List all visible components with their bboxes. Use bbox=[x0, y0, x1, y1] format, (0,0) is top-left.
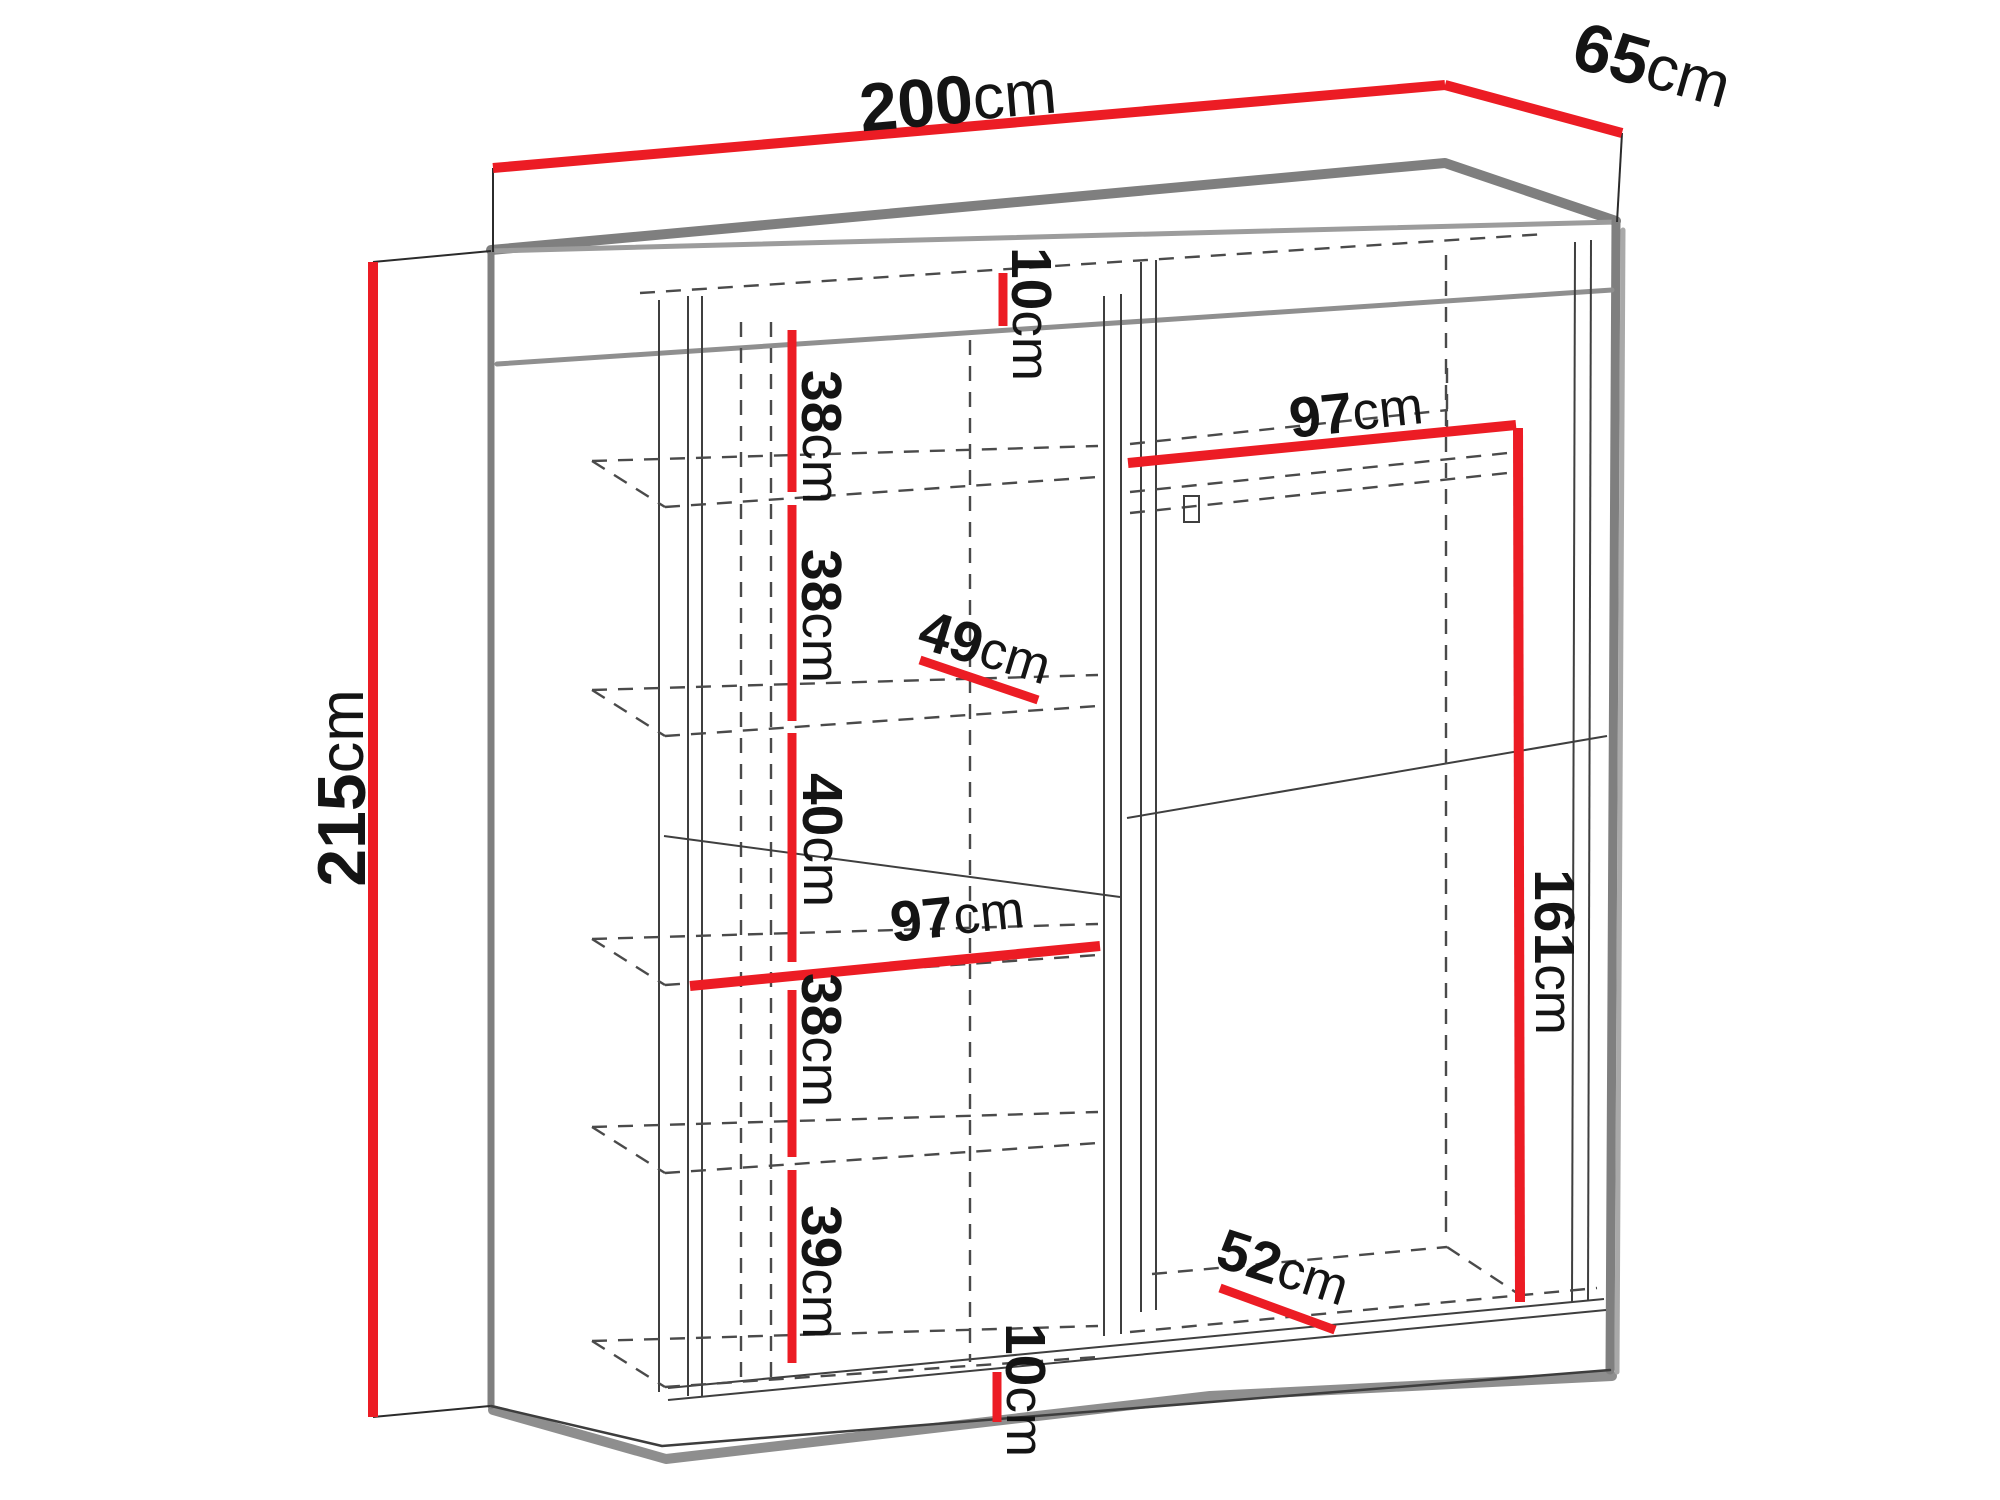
dim-depth-label: 65cm bbox=[1565, 7, 1739, 124]
dim-right-width: 97cm bbox=[1128, 373, 1516, 463]
dim-bottom-gap-label: 10cm bbox=[993, 1323, 1057, 1457]
hanging-rail-dashed-2 bbox=[1130, 473, 1508, 513]
diagram-canvas: 200cm65cm215cm10cm38cm38cm49cm40cm97cm38… bbox=[0, 0, 2000, 1500]
dim-shelf-space-2-label: 38cm bbox=[789, 549, 853, 683]
dim-shelf-depth-right-label: 52cm bbox=[1209, 1217, 1356, 1319]
dim-shelf-depth-left: 49cm bbox=[912, 598, 1059, 700]
dim-shelf-space-3: 40cm bbox=[790, 733, 854, 962]
dim-width: 200cm bbox=[493, 54, 1445, 252]
dim-height-witness-line bbox=[373, 251, 491, 262]
dim-shelf-depth-right: 52cm bbox=[1209, 1217, 1356, 1330]
shelf-dashed-4 bbox=[592, 1112, 1098, 1173]
dim-hanging-height-line bbox=[1518, 428, 1520, 1302]
floor-shadow bbox=[493, 230, 1623, 1459]
dim-shelf-space-5: 39cm bbox=[789, 1170, 853, 1363]
dim-height-label: 215cm bbox=[304, 689, 380, 886]
wardrobe-dimension-diagram: 200cm65cm215cm10cm38cm38cm49cm40cm97cm38… bbox=[0, 0, 2000, 1500]
right-edge bbox=[1610, 221, 1616, 1370]
right-door-seam bbox=[1127, 736, 1607, 818]
left-door bbox=[659, 296, 1120, 1396]
dim-shelf-space-5-label: 39cm bbox=[789, 1205, 853, 1339]
rail-bracket bbox=[1184, 496, 1199, 522]
dim-shelf-space-4-label: 38cm bbox=[789, 973, 853, 1107]
right-inner-wall bbox=[1588, 240, 1591, 1300]
dim-shelf-space-2: 38cm bbox=[789, 505, 853, 721]
dim-hanging-height-label: 161cm bbox=[1522, 869, 1586, 1035]
dim-width-label: 200cm bbox=[856, 54, 1059, 147]
dim-top-gap: 10cm bbox=[999, 247, 1063, 381]
dim-depth-line bbox=[1445, 85, 1622, 133]
dim-height-witness-line bbox=[373, 1406, 490, 1417]
dim-height: 215cm bbox=[304, 251, 491, 1417]
left-door-seam bbox=[664, 836, 1120, 897]
dim-left-width: 97cm bbox=[690, 877, 1100, 986]
dim-shelf-space-4: 38cm bbox=[789, 973, 853, 1157]
dim-left-width-label: 97cm bbox=[887, 877, 1027, 955]
floor-dashed-right bbox=[1130, 1247, 1597, 1332]
dim-depth: 65cm bbox=[1445, 7, 1739, 222]
dim-hanging-height: 161cm bbox=[1518, 428, 1586, 1302]
dim-shelf-space-1-label: 38cm bbox=[789, 370, 853, 504]
dim-depth-witness-line bbox=[1617, 133, 1622, 222]
right-door-right-stile bbox=[1572, 242, 1575, 1302]
dim-shelf-space-3-label: 40cm bbox=[790, 773, 854, 907]
dim-bottom-gap: 10cm bbox=[993, 1323, 1057, 1457]
dim-top-gap-label: 10cm bbox=[999, 247, 1063, 381]
dim-shelf-space-1: 38cm bbox=[789, 330, 853, 504]
